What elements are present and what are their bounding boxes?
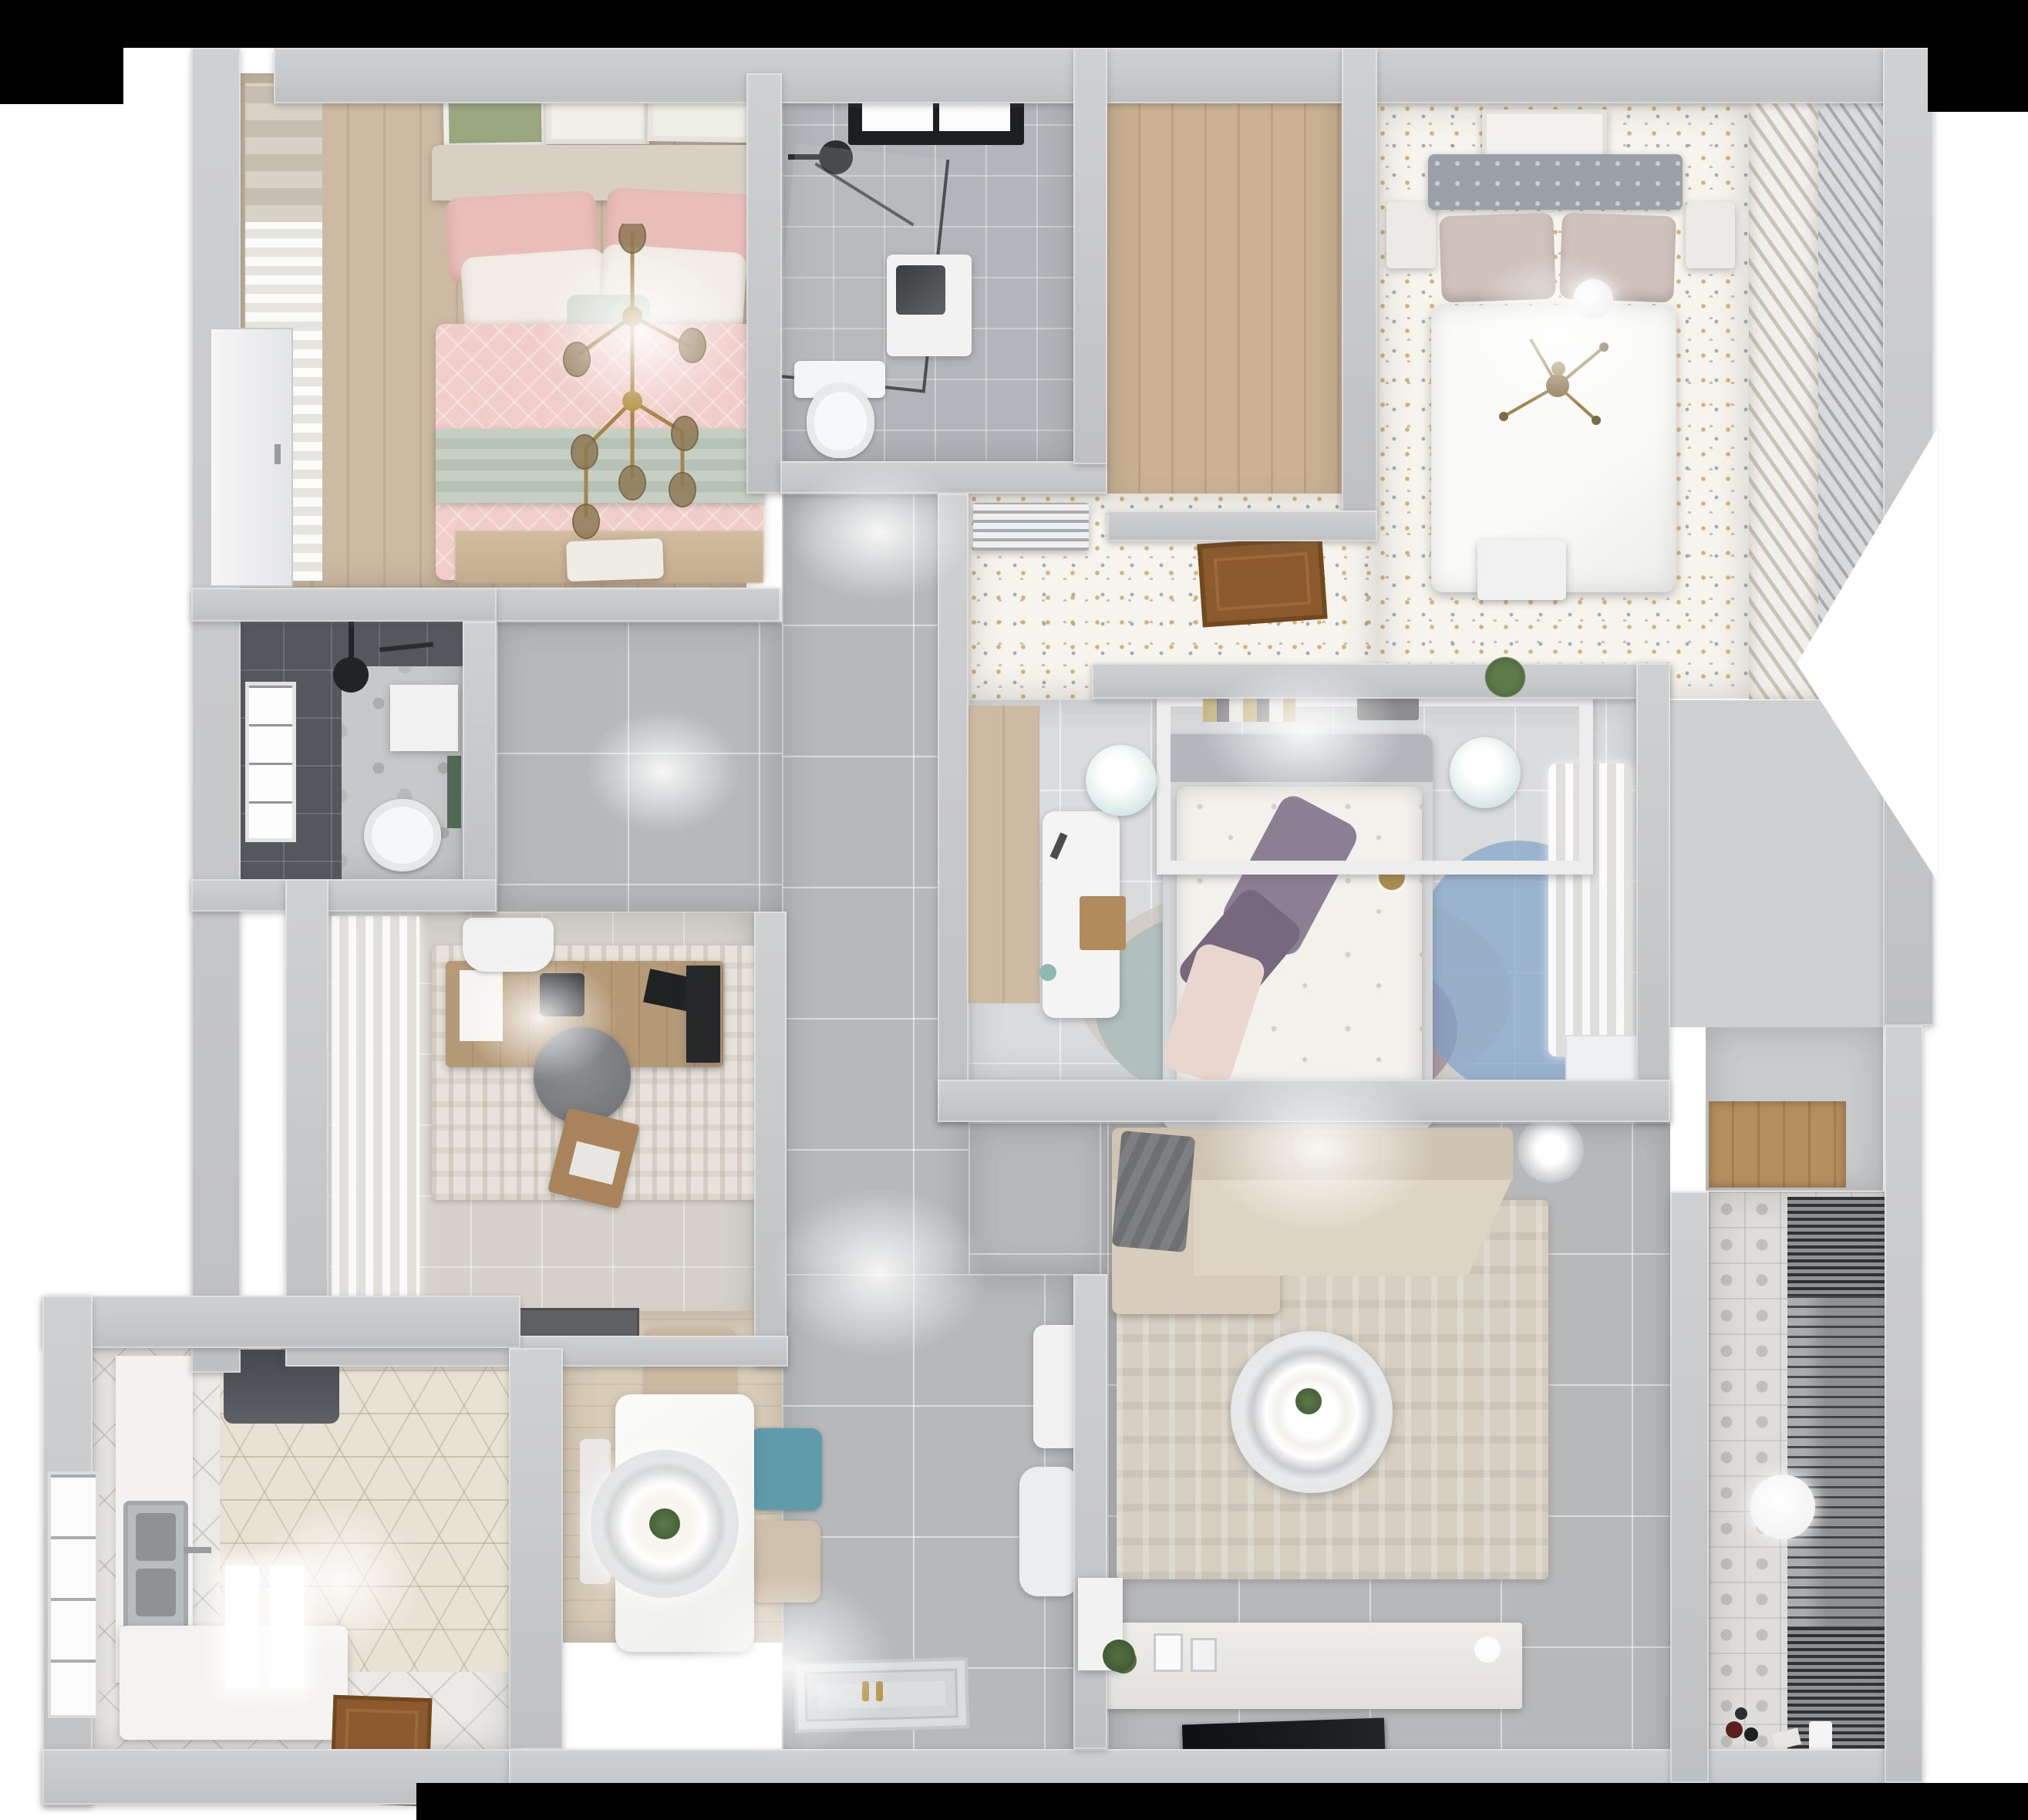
door-mat <box>1565 1035 1646 1081</box>
door-handle <box>275 444 281 464</box>
console-frame <box>1191 1638 1217 1672</box>
desk-shelf-side <box>686 966 720 1063</box>
ac-vent <box>973 503 1089 551</box>
wall-office-left <box>285 879 328 1367</box>
matte-top-left <box>0 0 123 104</box>
sheer-curtains <box>332 916 419 1306</box>
desk-paper <box>460 970 503 1041</box>
wall-mass-east <box>1670 700 1883 1027</box>
drying-rack-top <box>1787 1197 1885 1296</box>
drying-rack-blinds <box>1787 1296 1885 1627</box>
books <box>1357 697 1419 720</box>
wall-bed3-left <box>938 494 969 1122</box>
matte-bottom <box>416 1783 2028 1820</box>
kitchen-faucet <box>184 1547 211 1553</box>
ceiling-light-panel <box>270 1566 304 1687</box>
sphere-lamp <box>1573 279 1613 319</box>
green-plant-strip <box>447 756 461 828</box>
rain-shower-head <box>333 657 369 693</box>
gold-branch-chandelier <box>509 224 756 555</box>
sink-basin <box>136 1569 176 1616</box>
dining-chair-teal <box>750 1428 822 1510</box>
wall-b1-right <box>746 73 782 494</box>
desk-monitor <box>540 973 584 1016</box>
gold-branch-decor <box>1488 324 1627 447</box>
wall-living-balcony <box>1670 1191 1709 1783</box>
wall-foyer-living <box>1073 1274 1107 1749</box>
wall-bath1-bottom <box>780 461 1107 494</box>
coffee-table-plant <box>1295 1388 1322 1414</box>
storage-wood-shelf <box>1709 1101 1846 1188</box>
books <box>1203 696 1295 722</box>
desk-drawer-wood <box>1080 896 1126 950</box>
toy <box>1744 1727 1758 1741</box>
toy <box>1735 1707 1747 1720</box>
wall-bed3-top <box>1092 663 1670 699</box>
nightstand <box>1386 202 1436 268</box>
door-handle <box>876 1681 883 1701</box>
tv-console <box>1086 1623 1522 1709</box>
pillow-taupe <box>1439 212 1556 302</box>
wall-kitchen-dining <box>509 1348 563 1749</box>
mint-pouf <box>1450 737 1521 808</box>
wall-bath1-right <box>1073 48 1107 464</box>
wall-closet-right <box>1342 48 1377 517</box>
sofa-seat <box>1194 1177 1513 1276</box>
kitchen-window <box>48 1471 99 1718</box>
nightstand <box>1686 202 1735 268</box>
window <box>245 682 296 842</box>
tufted-headboard <box>1428 154 1683 210</box>
sofa-cushion <box>1289 1134 1382 1175</box>
wall-bed3-bottom <box>938 1080 1670 1122</box>
corridor-landing <box>969 1122 1107 1274</box>
wall-left <box>191 48 241 1373</box>
sink-basin <box>136 1513 176 1561</box>
console-frame <box>1154 1633 1183 1672</box>
room-walk-in-closet <box>1107 73 1342 511</box>
wall-right-lower <box>1885 1026 1923 1783</box>
mint-pouf <box>1086 745 1157 816</box>
corridor-west <box>497 622 782 912</box>
potted-plant <box>1485 657 1525 697</box>
wall-kitchen-top <box>42 1296 520 1348</box>
floor-plan <box>0 0 2028 1820</box>
sphere-lamp <box>1750 1475 1815 1539</box>
wall-bath2-top <box>191 588 497 622</box>
white-armchair <box>1019 1467 1080 1596</box>
floor-lamp-glow <box>1518 1117 1584 1183</box>
wall-shelf <box>390 685 458 751</box>
table-plant <box>649 1508 680 1539</box>
toy <box>1726 1721 1743 1738</box>
matte-top-right <box>1928 0 2028 112</box>
ceiling-light-panel <box>225 1566 259 1687</box>
white-console <box>1477 540 1566 600</box>
matte-top <box>0 0 2028 48</box>
wood-strip-floor <box>969 706 1039 1003</box>
dining-chair-beige <box>748 1521 820 1603</box>
throw-blanket <box>1112 1131 1196 1252</box>
round-office-chair <box>534 1027 631 1124</box>
teal-cup <box>1039 964 1056 981</box>
console-vase <box>1474 1636 1501 1663</box>
door-handle <box>862 1681 869 1701</box>
wall-bath2-bottom <box>191 879 497 912</box>
louver-wardrobe <box>1749 73 1818 699</box>
toilet-bowl <box>364 799 441 871</box>
wall-office-right <box>754 912 787 1367</box>
wall-bath2-right <box>463 622 497 912</box>
toilet-bowl <box>807 384 874 458</box>
plant-ball <box>1103 1640 1135 1672</box>
floor-hatch-wood-door <box>1197 535 1327 627</box>
wall-closet-bottom <box>1107 511 1377 541</box>
wall-bed3-right <box>1636 663 1670 1122</box>
white-desk-chair <box>463 918 554 972</box>
console-vase <box>1499 1652 1519 1672</box>
roman-blind <box>245 83 322 222</box>
washer-door <box>896 265 945 315</box>
